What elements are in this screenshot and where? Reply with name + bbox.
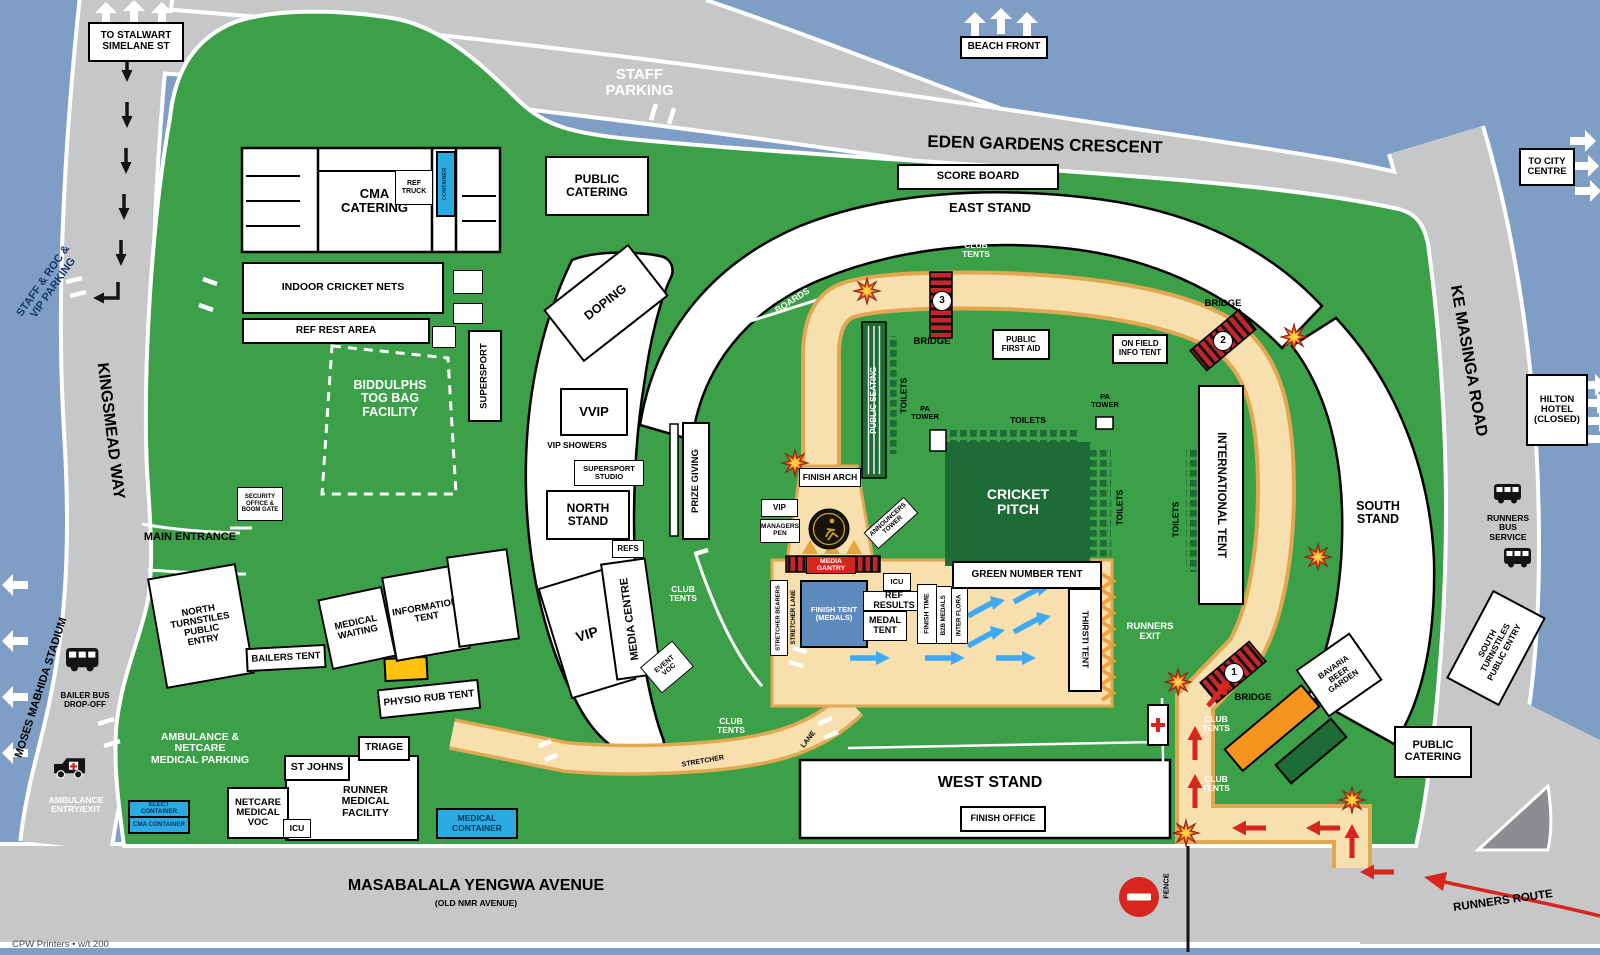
bridge-label: BRIDGE bbox=[905, 336, 959, 348]
bridge-number-badge: 1 bbox=[1224, 663, 1244, 683]
toilets-grid bbox=[1186, 450, 1198, 572]
to-city-centre-sign: TO CITY CENTRE bbox=[1519, 148, 1575, 186]
ref-results-box: REF RESULTS bbox=[863, 591, 925, 611]
managers-pen-box: MANAGERS PEN bbox=[760, 519, 800, 543]
on-field-info-tent-box: ON FIELD INFO TENT bbox=[1112, 334, 1168, 364]
cricket-pitch-label: CRICKET PITCH bbox=[950, 480, 1086, 524]
small-box bbox=[453, 303, 483, 324]
starburst-marker-icon bbox=[1305, 544, 1331, 570]
supersport-studio-box: SUPERSPORT STUDIO bbox=[574, 460, 644, 486]
starburst-marker-icon bbox=[854, 278, 880, 304]
netcare-medical-voc-box: NETCARE MEDICAL VOC bbox=[227, 787, 289, 839]
club-tents-label: CLUB TENTS bbox=[756, 250, 800, 270]
public-catering-south: PUBLIC CATERING bbox=[1394, 726, 1472, 778]
runner-medical-facility-label: RUNNER MEDICAL FACILITY bbox=[318, 774, 413, 830]
to-stalwart-sign: TO STALWART SIMELANE ST bbox=[88, 22, 184, 62]
starburst-marker-icon bbox=[1173, 820, 1199, 846]
pa-tower-label: PA TOWER bbox=[1088, 390, 1122, 412]
finish-tent-box: FINISH TENT (MEDALS) bbox=[800, 580, 868, 648]
toilets-label: TOILETS bbox=[998, 415, 1058, 427]
prize-giving-bar bbox=[670, 424, 678, 536]
cma-container-box: CMA CONTAINER bbox=[128, 816, 190, 834]
score-board-box: SCORE BOARD bbox=[897, 164, 1059, 190]
west-stand-label: WEST STAND bbox=[880, 768, 1100, 798]
comrades-logo-icon bbox=[809, 509, 849, 549]
small-box bbox=[432, 326, 456, 348]
thirsti-tent-box: THIRSTI TENT bbox=[1068, 588, 1102, 692]
vvip-box: VVIP bbox=[560, 388, 628, 436]
south-stand-label: SOUTH STAND bbox=[1338, 496, 1418, 530]
st-johns-box: ST JOHNS bbox=[284, 755, 350, 781]
indoor-cricket-nets: INDOOR CRICKET NETS bbox=[242, 262, 444, 314]
biddulphs-tog-bag-label: BIDDULPHS TOG BAG FACILITY bbox=[330, 368, 450, 430]
prize-giving-box: PRIZE GIVING bbox=[682, 422, 710, 540]
ref-rest-area: REF REST AREA bbox=[242, 318, 430, 344]
club-tents-label: CLUB TENTS bbox=[954, 240, 998, 260]
security-office-box: SECURITY OFFICE & BOOM GATE bbox=[237, 487, 283, 521]
public-first-aid-box: PUBLIC FIRST AID bbox=[992, 329, 1050, 360]
public-seating-label: PUBLIC SEATING bbox=[862, 322, 886, 478]
icu-box: ICU bbox=[883, 573, 911, 591]
international-tent-box: INTERNATIONAL TENT bbox=[1198, 385, 1244, 605]
inter-flora-box: INTER FLORA bbox=[951, 586, 968, 644]
bailer-bus-dropoff-label: BAILER BUS DROP-OFF bbox=[56, 690, 114, 712]
no-entry-icon bbox=[1119, 877, 1159, 917]
club-tents-label: CLUB TENTS bbox=[1194, 714, 1238, 734]
bridge-number-badge: 2 bbox=[1213, 331, 1233, 351]
stretcher-bearers-box: STRETCHER BEARERS bbox=[770, 580, 788, 656]
vip-showers-label: VIP SHOWERS bbox=[542, 440, 612, 452]
hilton-hotel-sign: HILTON HOTEL (CLOSED) bbox=[1526, 374, 1588, 446]
vip-pen-box: VIP bbox=[761, 499, 798, 517]
ambulance-netcare-parking-label: AMBULANCE & NETCARE MEDICAL PARKING bbox=[140, 736, 260, 762]
toilets-label: TOILETS bbox=[1112, 480, 1128, 536]
club-tents-label: CLUB TENTS bbox=[1120, 240, 1164, 260]
refs-box: REFS bbox=[612, 540, 644, 558]
medical-container-box: MEDICAL CONTAINER bbox=[436, 808, 518, 839]
bridge-label: BRIDGE bbox=[1196, 298, 1250, 310]
east-stand-label: EAST STAND bbox=[905, 200, 1075, 216]
finish-time-box: FINISH TIME bbox=[917, 584, 937, 644]
supersport-box: SUPERSPORT bbox=[468, 330, 502, 422]
starburst-marker-icon bbox=[1165, 669, 1191, 695]
yellow-tent-shape bbox=[384, 657, 427, 681]
ref-truck-box: REF TRUCK bbox=[395, 170, 433, 205]
ambulance-entry-label: AMBULANCE ENTRY/EXIT bbox=[38, 794, 114, 816]
club-tents-label: CLUB TENTS bbox=[661, 584, 705, 604]
masabalala-avenue-label: MASABALALA YENGWA AVENUE bbox=[326, 876, 626, 896]
bridge-label: BRIDGE bbox=[1226, 692, 1280, 704]
small-box bbox=[453, 270, 483, 294]
finish-office-box: FINISH OFFICE bbox=[960, 806, 1046, 832]
medal-tent-box: MEDAL TENT bbox=[863, 611, 907, 641]
public-catering-north: PUBLIC CATERING bbox=[545, 156, 649, 216]
icu-box: ICU bbox=[283, 819, 311, 838]
green-number-tent-box: GREEN NUMBER TENT bbox=[952, 561, 1102, 589]
staff-parking-label: STAFF PARKING bbox=[592, 58, 687, 108]
first-aid-cross-icon bbox=[1148, 705, 1168, 745]
runners-bus-service-label: RUNNERS BUS SERVICE bbox=[1480, 510, 1536, 546]
runners-exit-label: RUNNERS EXIT bbox=[1124, 620, 1176, 644]
north-turnstiles-box: NORTH TURNSTILES PUBLIC ENTRY bbox=[147, 563, 255, 689]
finish-arch-box: FINISH ARCH bbox=[799, 468, 861, 487]
starburst-marker-icon bbox=[1339, 787, 1365, 813]
old-nmr-avenue-label: (OLD NMR AVENUE) bbox=[326, 898, 626, 909]
club-tents-label: CLUB TENTS bbox=[709, 716, 753, 736]
north-stand-box: NORTH STAND bbox=[546, 490, 630, 540]
triage-box: TRIAGE bbox=[358, 736, 410, 761]
club-tents-label: CLUB TENTS bbox=[1194, 774, 1238, 794]
printer-credit: CPW Printers • w/t 200 bbox=[12, 938, 212, 952]
fence-label: FENCE bbox=[1160, 866, 1174, 906]
main-entrance-label: MAIN ENTRANCE bbox=[142, 530, 238, 546]
pa-tower-shape bbox=[930, 430, 946, 451]
unlabeled-tent-box bbox=[446, 548, 520, 648]
container-box: CONTAINER bbox=[436, 151, 456, 217]
bridge-number-badge: 3 bbox=[932, 291, 952, 311]
venue-map: TO STALWART SIMELANE ST STAFF PARKING BE… bbox=[0, 0, 1600, 955]
media-gantry-box: MEDIA GANTRY bbox=[806, 556, 856, 574]
bailers-tent-box: BAILERS TENT bbox=[245, 644, 326, 672]
toilets-label: TOILETS bbox=[1168, 492, 1184, 548]
beach-front-sign: BEACH FRONT bbox=[960, 36, 1048, 59]
pa-tower-shape bbox=[1096, 417, 1113, 429]
pa-tower-label: PA TOWER bbox=[908, 402, 942, 424]
starburst-marker-icon bbox=[1281, 324, 1307, 350]
